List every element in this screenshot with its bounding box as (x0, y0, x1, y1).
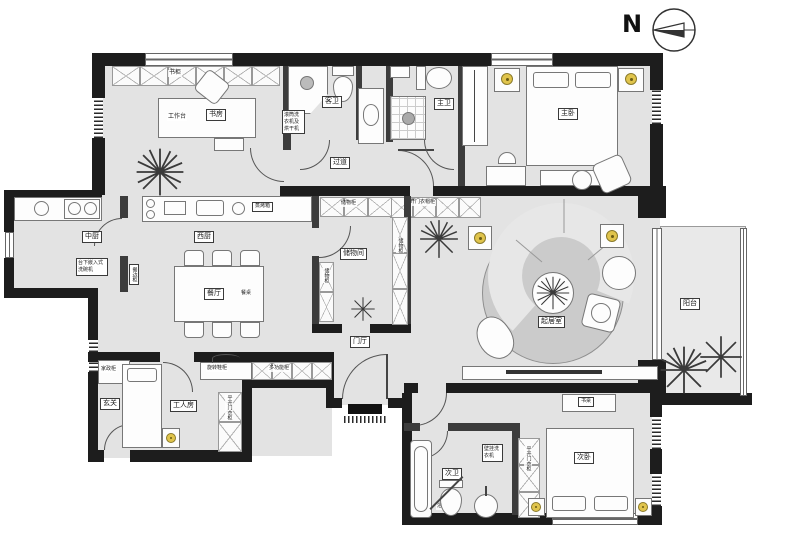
sideboard-label: 餐边柜 (129, 264, 139, 285)
guestbath-label: 客卫 (322, 96, 342, 108)
dining-chair (212, 322, 232, 338)
wall-washer-note: 壁挂洗衣机 (482, 444, 503, 462)
bookshelf-cell (252, 66, 280, 86)
bookshelf-label: 书柜 (168, 70, 182, 77)
multi-cabinet-label: 多功能柜 (268, 366, 290, 372)
wardrobe-cell (459, 197, 481, 218)
pillow (552, 496, 586, 511)
wall (233, 53, 491, 66)
bathtub-inner (414, 446, 428, 512)
master-closet (462, 66, 488, 146)
dresser-stool (498, 152, 516, 164)
window-hatch (652, 417, 661, 449)
small-appliance (164, 201, 186, 215)
table-lamp (166, 433, 176, 443)
table-lamp (531, 502, 541, 512)
storage-room-label: 储物间 (340, 248, 367, 260)
window (491, 53, 553, 66)
wall (280, 186, 410, 196)
masterbath-label: 主卫 (434, 98, 454, 110)
partition (404, 423, 420, 431)
wall (404, 383, 418, 393)
worktable-label: 工作台 (167, 114, 187, 121)
storage-cabinet-label: 储物柜 (340, 201, 357, 207)
corridor-label: 过道 (330, 157, 350, 169)
multi-cabinet-cell (312, 362, 332, 380)
washer-dryer-note: 滚筒洗衣机及烘干机 (282, 110, 305, 134)
kitchen-sink (196, 200, 224, 216)
wall (312, 324, 342, 333)
wall (650, 449, 662, 474)
study-room-label: 书房 (206, 109, 226, 121)
wall (92, 53, 105, 98)
dresser (486, 166, 526, 186)
second-bedroom-label: 次卧 (574, 452, 594, 464)
storage-cabinet-label: 储物柜 (322, 268, 330, 283)
multi-cabinet-cell (292, 362, 312, 380)
shower-head (300, 76, 314, 90)
living-room-label: 起居室 (538, 316, 565, 328)
partition (448, 423, 520, 431)
master-bedroom-label: 主卧 (558, 108, 578, 120)
wardrobe-cell (436, 197, 459, 218)
wall (242, 380, 252, 456)
bedroom-wardrobe-label: 平开门衣柜 (524, 446, 532, 471)
storage-cabinet-cell (368, 197, 392, 217)
window-hatch (652, 474, 661, 506)
plant (418, 218, 460, 260)
wall (4, 288, 98, 298)
basin-stem (485, 486, 487, 496)
storage-cabinet-cell (392, 253, 408, 289)
kitchen-round-sink (34, 201, 49, 216)
dining-room-label: 餐厅 (204, 288, 224, 300)
table-lamp (625, 73, 637, 85)
side-table (572, 170, 592, 190)
foyer-label: 门厅 (350, 336, 370, 348)
pillow (594, 496, 628, 511)
oven-label: 蒸烤箱 (252, 202, 273, 212)
pillow (533, 72, 569, 88)
entry-doormat (348, 404, 382, 414)
window (5, 232, 14, 258)
plant (698, 334, 744, 380)
wall (92, 138, 105, 195)
wall (242, 380, 334, 388)
housekeeping-cabinet-label: 家政柜 (100, 367, 117, 373)
wall (650, 66, 663, 90)
dishwasher-note: 台下嵌入式洗碗机 (76, 258, 108, 276)
north-label: N (622, 10, 642, 38)
dining-chair (240, 322, 260, 338)
pillow (127, 368, 157, 382)
toilet-bowl (426, 67, 452, 89)
shoe-mechanism (212, 354, 240, 363)
occasional-chair-seat (591, 303, 611, 323)
toilet-tank (416, 66, 426, 90)
entry-step (344, 416, 386, 423)
partition (312, 196, 319, 228)
partition (312, 256, 319, 330)
dining-table-label: 餐桌 (240, 291, 252, 297)
balcony-door-window (652, 228, 662, 360)
maid-room-label: 工人房 (170, 400, 197, 412)
window-hatch (652, 90, 661, 124)
maid-wardrobe-cell (218, 422, 242, 452)
wall (88, 372, 98, 456)
balcony-label: 阳台 (680, 298, 700, 310)
wall (370, 324, 411, 333)
storage-cabinet-cell (392, 289, 408, 325)
window (145, 53, 233, 66)
wall (446, 383, 662, 393)
closet-rail (474, 70, 475, 142)
wall (4, 190, 14, 232)
vanity-basin (363, 104, 379, 126)
dining-chair (184, 322, 204, 338)
bookshelf-cell (140, 66, 168, 86)
window-hatch (94, 98, 103, 138)
entry-label: 玄关 (100, 398, 120, 410)
west-kitchen-label: 西厨 (194, 231, 214, 243)
chinese-kitchen-label: 中厨 (82, 231, 102, 243)
storage-cabinet-label: 储物柜 (396, 238, 404, 253)
wall (88, 292, 98, 340)
hob-burner (146, 199, 155, 208)
maid-wardrobe-label: 平开门衣柜 (225, 395, 233, 420)
masterbath-niche (390, 66, 410, 78)
dining-chair (184, 250, 204, 266)
table-lamp (638, 502, 648, 512)
partition (120, 256, 128, 292)
compass-icon (650, 6, 698, 54)
plant (350, 296, 376, 322)
entry-door-leaf (386, 354, 388, 399)
pillow (575, 72, 611, 88)
burner (84, 202, 97, 215)
wall (326, 398, 342, 408)
sofa-ottoman (602, 256, 636, 290)
dining-chair (240, 250, 260, 266)
shoe-cabinet-label: 旋转鞋柜 (206, 366, 228, 372)
partition (120, 196, 128, 218)
pedestal-basin (474, 494, 498, 518)
bookshelf-cell (112, 66, 140, 86)
dining-chair (212, 250, 232, 266)
desk-label: 书桌 (578, 397, 594, 407)
floor-plan: 书柜 工作台 书房 客卫 滚筒洗衣机及烘干机 主卫 过道 平开门衣帽柜 主卧 (0, 0, 795, 537)
table-lamp (501, 73, 513, 85)
shower-head (402, 112, 415, 125)
study-side-table (214, 138, 244, 151)
plant (134, 146, 186, 198)
wall (88, 450, 104, 462)
wall (553, 53, 663, 66)
toilet-tank (332, 66, 354, 76)
tv (506, 370, 602, 374)
hob-burner (146, 210, 155, 219)
table-lamp (606, 230, 618, 242)
table-lamp (474, 232, 486, 244)
burner (68, 202, 81, 215)
wall (103, 53, 145, 66)
storage-cabinet-cell (319, 292, 334, 322)
plant (535, 275, 571, 311)
round-basin (232, 202, 245, 215)
